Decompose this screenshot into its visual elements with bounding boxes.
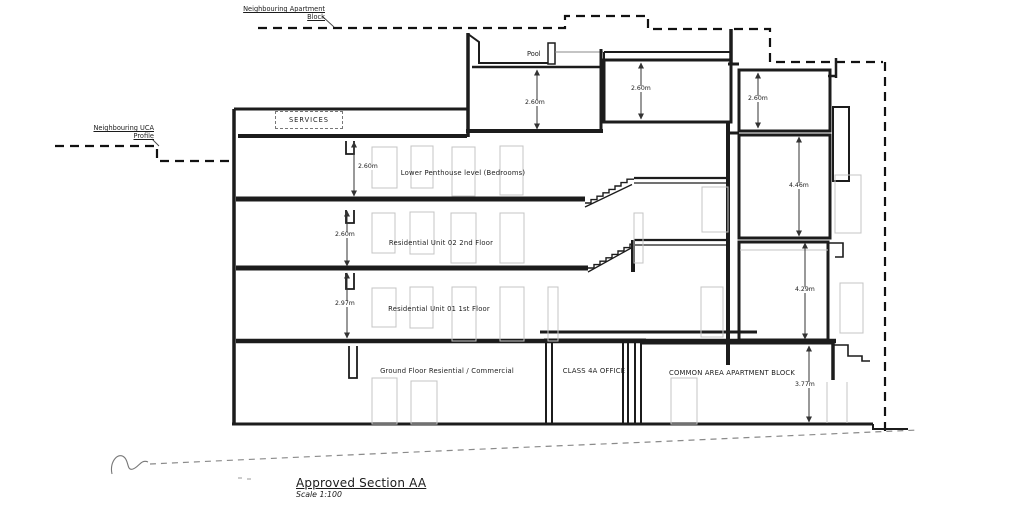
neighbour-uca-annotation: Neighbouring UCA Profile (72, 124, 154, 140)
floor-label-common: COMMON AREA APARTMENT BLOCK (669, 369, 795, 377)
neighbour-uca-line2: Profile (133, 132, 154, 140)
dimension-label-second-height: 2.60m (334, 232, 356, 238)
floor-label-penthouse: Lower Penthouse level (Bedrooms) (401, 169, 526, 177)
floor-label-first: Residential Unit 01 1st Floor (388, 305, 490, 313)
neighbour-uca-line1: Neighbouring UCA (93, 124, 154, 132)
dimension-label-penthouse-height: 2.60m (357, 164, 379, 170)
neighbour-apartment-line1: Neighbouring Apartment (243, 5, 325, 13)
stairs (585, 178, 728, 272)
section-drawing-linework (0, 0, 1024, 522)
ground-right-walls (544, 340, 870, 424)
break-squiggle (111, 456, 148, 474)
section-drawing-canvas: Neighbouring Apartment Block Neighbourin… (0, 0, 1024, 522)
drawing-scale: Scale 1:100 (296, 490, 342, 499)
floor-label-ground: Ground Floor Resiential / Commercial (380, 367, 514, 375)
uca-profile-dashed (55, 146, 232, 161)
neighbour-apartment-annotation: Neighbouring Apartment Block (225, 5, 325, 21)
dimension-label-top-room-left: 2.60m (630, 86, 652, 92)
dimension-label-pool-room: 2.60m (524, 100, 546, 106)
drawing-title: Approved Section AA (296, 476, 426, 490)
pool-block-walls (466, 33, 603, 137)
dimension-label-lower-right-room: 4.29m (794, 287, 816, 293)
services-label: SERVICES (289, 116, 329, 124)
dimension-label-top-room-right: 2.60m (747, 96, 769, 102)
floor-label-office: CLASS 4A OFFICE (563, 367, 625, 375)
dimension-label-common-height: 3.77m (794, 382, 816, 388)
ground-profile-line (111, 430, 918, 479)
pool-label: Pool (527, 50, 541, 58)
floor-label-second: Residential Unit 02 2nd Floor (389, 239, 493, 247)
services-box: SERVICES (275, 111, 343, 129)
neighbour-apartment-line2: Block (307, 13, 325, 21)
dimension-label-first-height: 2.97m (334, 301, 356, 307)
dimension-label-upper-right-room: 4.46m (788, 183, 810, 189)
